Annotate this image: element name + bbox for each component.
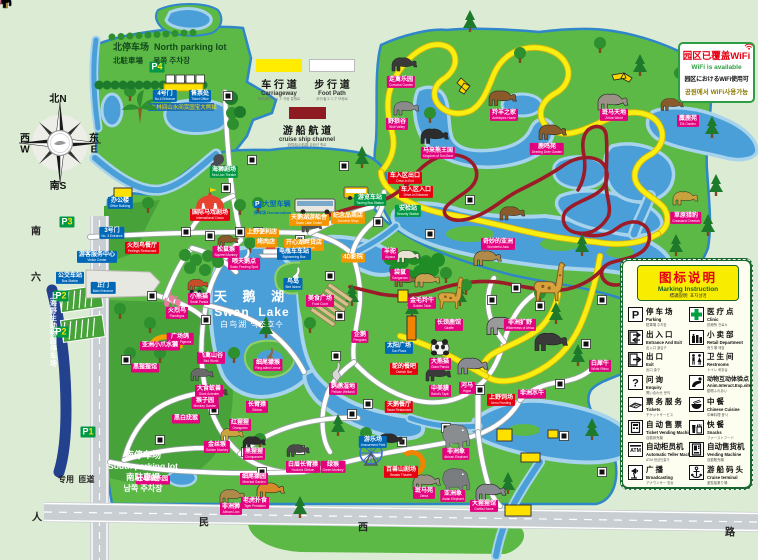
svg-text:ATM: ATM	[630, 448, 641, 454]
svg-text:P: P	[632, 310, 639, 322]
svg-text:?: ?	[632, 377, 639, 389]
